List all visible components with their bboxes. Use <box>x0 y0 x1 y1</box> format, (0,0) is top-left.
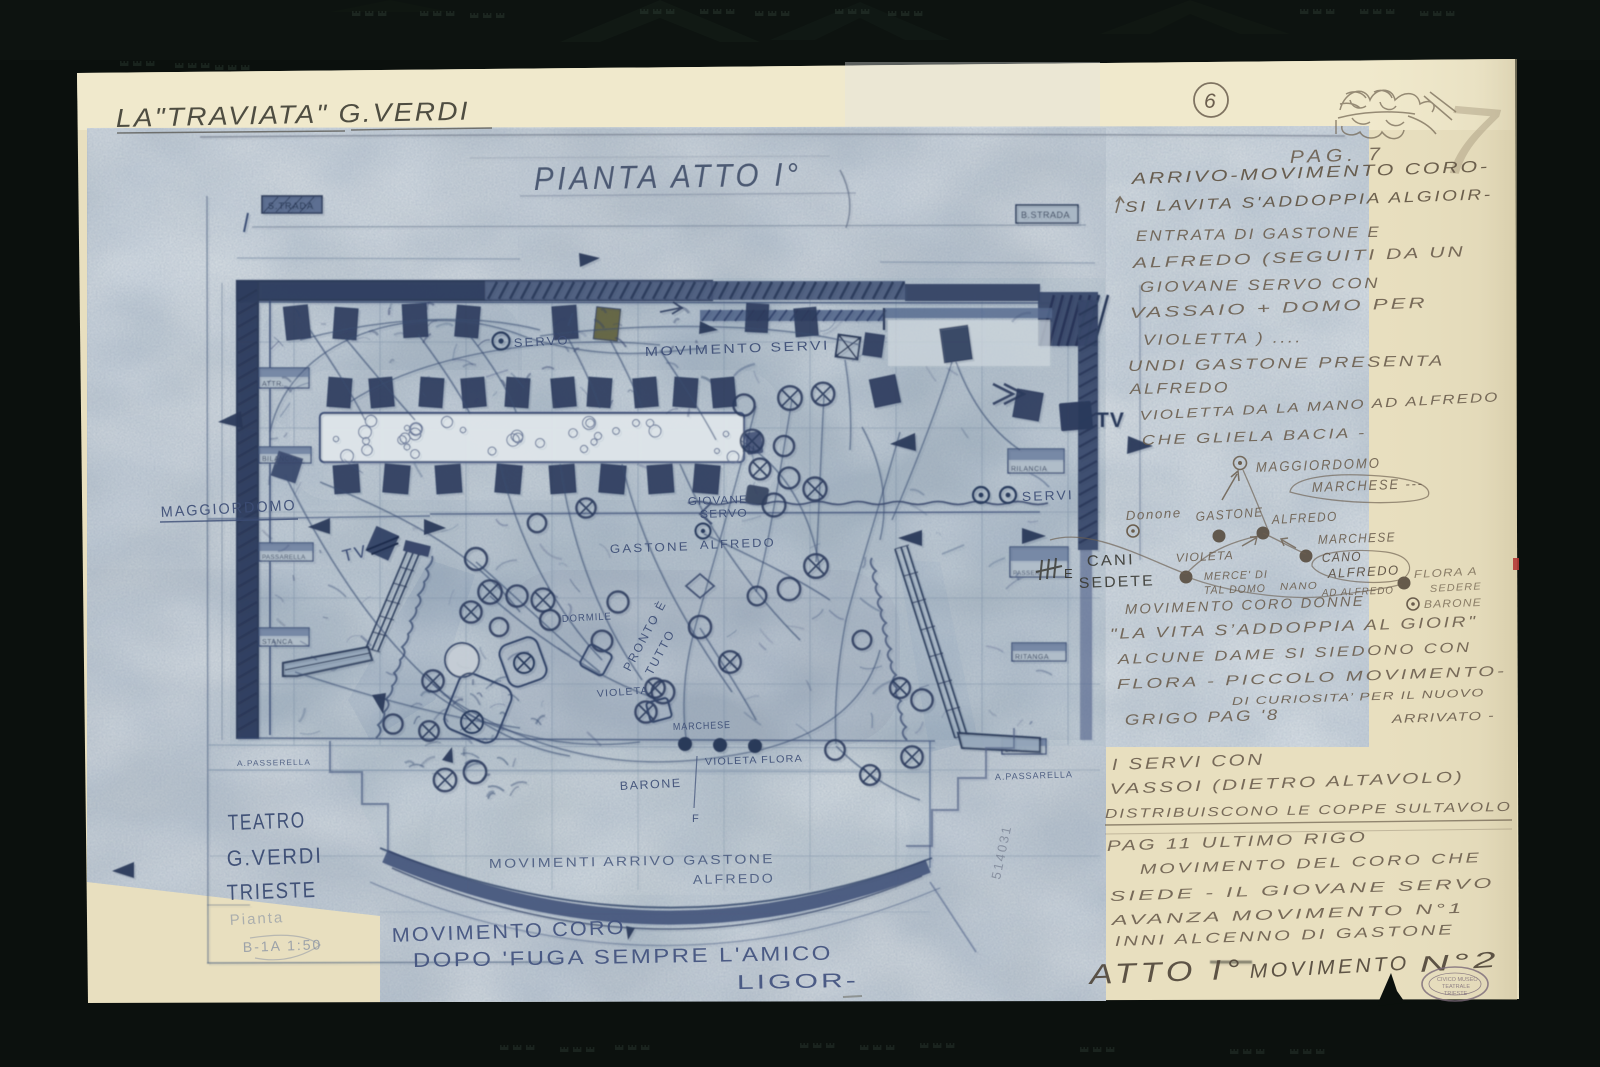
svg-text:ATTO I°: ATTO I° <box>1087 954 1245 990</box>
svg-text:B-1A 1:50: B-1A 1:50 <box>243 936 323 955</box>
svg-text:MERCE' DI: MERCE' DI <box>1204 569 1268 583</box>
svg-text:TEATRALE: TEATRALE <box>1442 984 1470 990</box>
svg-text:SEDETE: SEDETE <box>1079 572 1156 592</box>
svg-text:F: F <box>692 813 699 825</box>
svg-text:G.VERDI: G.VERDI <box>226 843 323 871</box>
svg-text:E: E <box>1064 566 1073 581</box>
svg-text:Pianta: Pianta <box>229 909 284 929</box>
svg-text:TRIESTE: TRIESTE <box>226 877 317 905</box>
svg-text:NANO: NANO <box>1280 581 1318 593</box>
svg-text:TEATRO: TEATRO <box>227 807 306 835</box>
svg-text:SERVO: SERVO <box>700 507 748 521</box>
svg-text:ALFREDO: ALFREDO <box>1129 379 1230 398</box>
svg-text:SERVO: SERVO <box>513 333 570 350</box>
svg-text:GASTONE: GASTONE <box>610 539 690 556</box>
svg-text:BARONE: BARONE <box>1424 597 1482 611</box>
svg-text:SERVI: SERVI <box>1022 487 1074 504</box>
svg-text:CIVICO MUSEO: CIVICO MUSEO <box>1437 977 1478 983</box>
svg-text:PIANTA ATTO I°: PIANTA ATTO I° <box>533 156 802 197</box>
svg-text:ALFREDO: ALFREDO <box>700 535 776 552</box>
svg-text:TRIESTE: TRIESTE <box>1444 991 1468 997</box>
svg-text:GIOVANE: GIOVANE <box>688 494 748 508</box>
svg-text:MARCHESE: MARCHESE <box>1318 529 1396 547</box>
svg-text:LIGOR-: LIGOR- <box>737 970 859 994</box>
svg-text:A.PASSERELLA: A.PASSERELLA <box>237 758 311 768</box>
svg-text:VIOLETTA ) ....: VIOLETTA ) .... <box>1143 329 1303 349</box>
svg-text:ALFREDO: ALFREDO <box>693 871 775 887</box>
svg-text:CANI: CANI <box>1087 551 1136 570</box>
svg-text:6: 6 <box>1204 90 1216 113</box>
svg-text:Donone: Donone <box>1125 505 1182 523</box>
svg-text:MARCHESE: MARCHESE <box>673 720 731 733</box>
